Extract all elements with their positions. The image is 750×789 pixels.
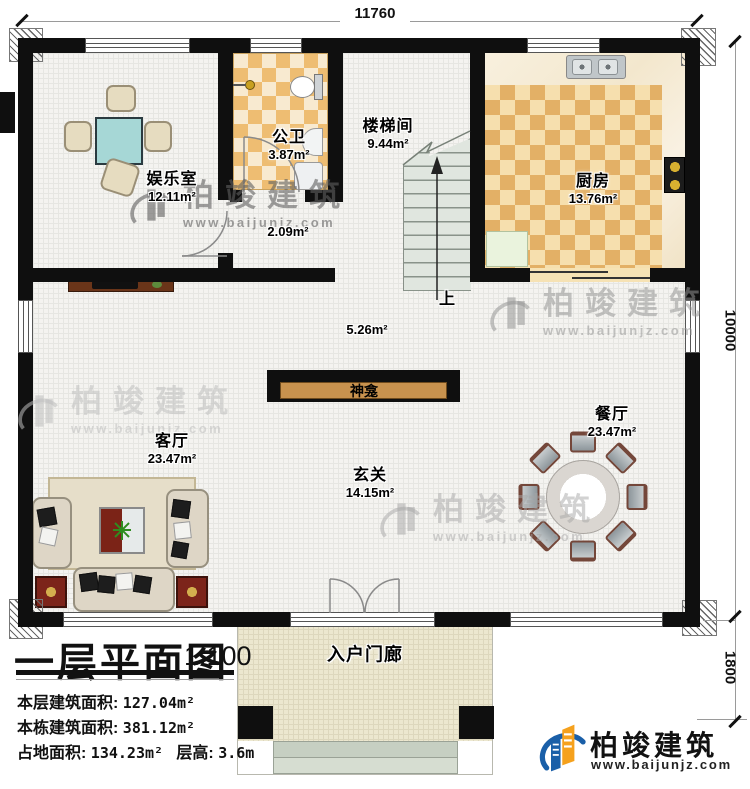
window — [18, 300, 33, 353]
game-table — [95, 117, 143, 165]
toilet — [290, 76, 315, 98]
chair — [106, 85, 136, 112]
sliding-panel — [530, 271, 608, 273]
pillow — [115, 572, 133, 590]
room-label-bathroom: 公卫3.87m² — [268, 129, 309, 163]
area-row-building: 本栋建筑面积: 381.12m² — [17, 714, 195, 738]
pillow — [97, 575, 116, 594]
room-label-stairwell: 楼梯间9.44m² — [362, 118, 413, 152]
console-plant — [152, 281, 162, 288]
drawing-scale: 1:100 — [184, 641, 252, 672]
sink-basin — [598, 59, 618, 75]
floor-plan-canvas: 柏竣建筑www.baijunjz.com 柏竣建筑www.baijunjz.co… — [0, 0, 750, 789]
wall-bathroom-right — [328, 38, 343, 202]
light-stem — [232, 84, 246, 86]
room-label-kitchen: 厨房13.76m² — [569, 173, 617, 207]
dimension-top-value: 11760 — [340, 5, 410, 22]
porch-floor — [238, 624, 492, 741]
dining-chair — [519, 484, 540, 510]
kitchen-cabinet — [486, 231, 528, 267]
dining-table — [546, 460, 620, 534]
wall-stair-kitchen — [470, 38, 485, 282]
toilet-tank — [314, 74, 323, 100]
wall-kitchen-bottom-a — [485, 268, 530, 282]
window — [250, 38, 302, 53]
pillow — [79, 572, 99, 592]
window — [527, 38, 600, 53]
porch-column-left — [238, 706, 273, 739]
dimension-extension — [697, 719, 747, 720]
light-fixture — [245, 80, 255, 90]
staircase — [403, 138, 471, 291]
side-table-right — [176, 576, 208, 608]
room-label-dining: 餐厅23.47m² — [588, 406, 636, 440]
porch-step-2 — [273, 757, 458, 774]
area-label-landing: 5.26m² — [346, 322, 387, 338]
pillow — [171, 499, 191, 519]
title-rule-thin — [16, 679, 234, 680]
stove — [664, 157, 685, 193]
title-rule-thick — [16, 670, 234, 675]
tv — [92, 281, 138, 289]
sliding-panel — [572, 277, 650, 279]
pillow — [133, 575, 152, 594]
dimension-line-right — [735, 42, 736, 723]
wall-kitchen-bottom-b — [650, 268, 700, 282]
dimension-right-value: 10000 — [722, 306, 739, 356]
washing-machine — [294, 162, 323, 190]
chair — [64, 121, 92, 152]
pillow — [173, 521, 192, 540]
window — [685, 300, 700, 353]
wall-bathroom-left — [218, 38, 233, 200]
wall-bathroom-bottom-b — [305, 190, 343, 202]
room-label-porch: 入户门廊 — [327, 645, 403, 666]
pillow — [38, 526, 58, 546]
window — [85, 38, 190, 53]
shrine-label: 神龛 — [350, 381, 378, 401]
pillow — [37, 507, 58, 528]
room-label-foyer: 玄关14.15m² — [346, 467, 394, 501]
stairs-up-label: 上 — [439, 285, 455, 309]
edge-wall-fragment — [0, 92, 15, 133]
brand-logo-icon — [538, 716, 590, 780]
window — [63, 612, 213, 627]
wall-hall-bottom — [18, 268, 335, 282]
coffee-table — [99, 507, 145, 554]
area-label-hall: 2.09m² — [267, 224, 308, 240]
sink-basin — [572, 59, 592, 75]
room-label-entertainment: 娱乐室12.11m² — [146, 171, 197, 205]
dining-chair — [627, 484, 648, 510]
dimension-porch-value: 1800 — [722, 646, 739, 690]
brand-website: www.baijunjz.com — [591, 757, 732, 772]
area-row-floor: 本层建筑面积: 127.04m² — [17, 689, 195, 713]
dining-chair — [570, 541, 596, 562]
porch-step-1 — [273, 741, 458, 758]
window — [510, 612, 663, 627]
porch-column-right — [459, 706, 494, 739]
room-label-living: 客厅23.47m² — [148, 433, 196, 467]
wall-bathroom-bottom-a — [230, 190, 242, 202]
area-row-footprint: 占地面积: 134.23m² 层高: 3.6m — [17, 739, 254, 763]
pillow — [171, 541, 190, 560]
entry-door-frame — [290, 612, 435, 627]
chair — [144, 121, 172, 152]
